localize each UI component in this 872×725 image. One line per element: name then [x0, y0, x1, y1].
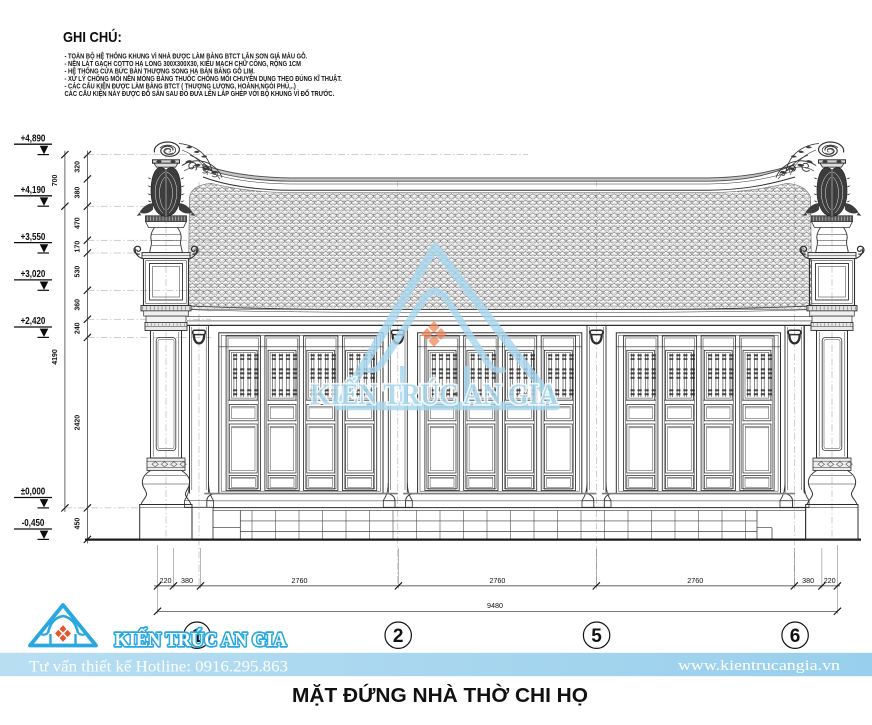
svg-text:GHI CHÚ:: GHI CHÚ:	[63, 27, 122, 45]
svg-text:+4,890: +4,890	[21, 133, 46, 144]
svg-text:KIẾN TRÚC AN GIA: KIẾN TRÚC AN GIA	[310, 377, 558, 411]
svg-text:+4,190: +4,190	[21, 184, 46, 195]
svg-text:170: 170	[75, 241, 82, 253]
svg-text:-0,450: -0,450	[22, 517, 45, 528]
svg-text:6: 6	[790, 626, 801, 647]
svg-text:240: 240	[75, 322, 82, 334]
svg-text:KIẾN TRÚC AN GIA: KIẾN TRÚC AN GIA	[115, 627, 287, 651]
svg-text:+3,550: +3,550	[21, 231, 46, 242]
svg-text:5: 5	[591, 626, 602, 647]
svg-text:2420: 2420	[75, 415, 82, 431]
svg-text:380: 380	[802, 576, 814, 585]
svg-text:Tư vấn thiết kế Hotline: 0916.: Tư vấn thiết kế Hotline: 0916.295.863	[29, 659, 288, 676]
svg-text:2760: 2760	[687, 576, 703, 585]
svg-text:220: 220	[824, 576, 836, 585]
svg-text:380: 380	[75, 187, 82, 199]
svg-text:9480: 9480	[487, 601, 503, 610]
svg-text:2760: 2760	[489, 576, 505, 585]
svg-text:360: 360	[75, 299, 82, 311]
svg-text:MẶT ĐỨNG NHÀ THỜ CHI HỌ: MẶT ĐỨNG NHÀ THỜ CHI HỌ	[292, 683, 588, 707]
svg-text:450: 450	[75, 518, 82, 530]
svg-text:380: 380	[181, 576, 193, 585]
svg-text:www.kientrucangia.vn: www.kientrucangia.vn	[678, 658, 841, 674]
svg-text:±0,000: ±0,000	[21, 486, 46, 497]
svg-text:4190: 4190	[52, 349, 59, 365]
svg-text:2760: 2760	[292, 576, 308, 585]
svg-text:530: 530	[75, 266, 82, 278]
svg-text:220: 220	[160, 576, 172, 585]
svg-text:+2,420: +2,420	[21, 315, 46, 326]
svg-text:470: 470	[75, 217, 82, 229]
svg-text:700: 700	[52, 174, 59, 186]
svg-text:320: 320	[75, 161, 82, 173]
svg-text:+3,020: +3,020	[21, 268, 46, 279]
svg-text:2: 2	[393, 626, 404, 647]
